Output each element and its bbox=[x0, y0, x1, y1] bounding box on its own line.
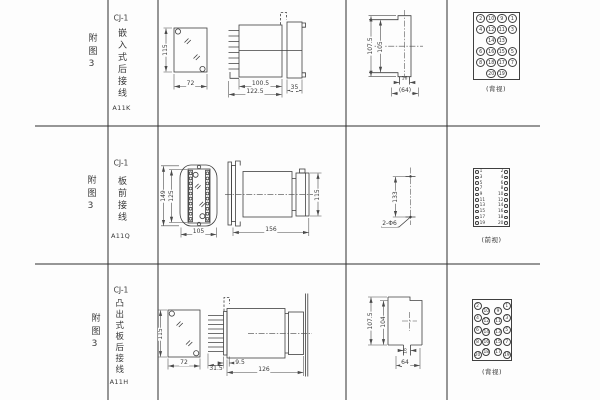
dim-label: 100.5 bbox=[251, 81, 270, 87]
mounting-type-label: 板前接线 bbox=[116, 176, 125, 224]
product-code-label: A11Q bbox=[111, 232, 130, 239]
dim-label: 104 bbox=[381, 315, 387, 328]
dim-label: 126 bbox=[257, 367, 270, 373]
row3-side-view bbox=[208, 294, 308, 377]
pin-number: 2 bbox=[492, 169, 505, 174]
dim-label: 133 bbox=[393, 190, 399, 203]
mounting-type-label: 嵌入式后接线 bbox=[116, 28, 125, 100]
row1-front-view bbox=[174, 28, 207, 72]
row1-side-view bbox=[229, 13, 306, 79]
terminal-pin: 13 bbox=[494, 328, 502, 336]
terminal-pin bbox=[504, 193, 508, 197]
dim-label: (64) bbox=[398, 88, 412, 94]
figure-number-label: 附图3 bbox=[87, 33, 96, 73]
terminal-pin: 17 bbox=[494, 348, 502, 356]
pin-number: 16 bbox=[492, 209, 505, 214]
terminal-pin: 6 bbox=[476, 47, 486, 57]
terminal-pin: 16 bbox=[482, 338, 490, 346]
row3-front-view bbox=[168, 310, 200, 357]
terminal-pin: 10 bbox=[486, 14, 496, 24]
terminal-pin: 6 bbox=[474, 326, 482, 334]
dim-label: 107.5 bbox=[368, 36, 374, 55]
dim-label: 125 bbox=[169, 189, 175, 202]
terminal-pin: 12 bbox=[482, 317, 490, 325]
pin-number: 15 bbox=[479, 209, 492, 214]
dim-label: 107.5 bbox=[368, 311, 374, 330]
pin-number: 9 bbox=[479, 192, 492, 197]
terminal-pin: 4 bbox=[474, 314, 482, 322]
dim-label: 35 bbox=[290, 85, 300, 91]
dim-label: 16 bbox=[405, 347, 410, 354]
pin-number: 17 bbox=[479, 215, 492, 220]
view-caption: (背视) bbox=[486, 86, 506, 93]
terminal-grid-front-a11q: 1234567891011121314151617181920 bbox=[473, 168, 510, 227]
dim-label: 115 bbox=[158, 327, 164, 340]
terminal-pin: 11 bbox=[494, 317, 502, 325]
terminal-pin: 3 bbox=[503, 314, 511, 322]
pin-number: 4 bbox=[492, 175, 505, 180]
pin-number: 19 bbox=[479, 221, 492, 226]
dim-label: 105 bbox=[192, 229, 205, 235]
terminal-pin: 2 bbox=[476, 14, 486, 24]
terminal-pin: 8 bbox=[474, 338, 482, 346]
terminal-grid-rear-a11k: 2109141211314136161558181772019 bbox=[473, 12, 520, 80]
terminal-pin: 14 bbox=[482, 328, 490, 336]
pin-number: 10 bbox=[492, 192, 505, 197]
view-caption: (前视) bbox=[481, 237, 501, 244]
terminal-pin: 10 bbox=[482, 307, 490, 315]
terminal-pin: 20 bbox=[486, 69, 496, 79]
dim-label: 16 bbox=[401, 78, 408, 83]
terminal-pin: 18 bbox=[482, 348, 490, 356]
terminal-pin bbox=[504, 216, 508, 220]
mounting-type-label: 凸出式板后接线 bbox=[114, 299, 123, 376]
terminal-pin bbox=[504, 204, 508, 208]
terminal-pin: 8 bbox=[476, 58, 486, 68]
dim-label: 9.5 bbox=[234, 360, 246, 366]
dim-label: 115 bbox=[163, 43, 169, 56]
terminal-pin: 15 bbox=[494, 338, 502, 346]
terminal-pin bbox=[504, 221, 508, 225]
pin-number: 5 bbox=[479, 181, 492, 186]
product-code-label: A11H bbox=[110, 379, 129, 386]
terminal-pin: 3 bbox=[508, 25, 518, 35]
pin-number: 3 bbox=[479, 175, 492, 180]
terminal-pin: 7 bbox=[503, 338, 511, 346]
dim-label: 122.5 bbox=[245, 89, 264, 95]
terminal-pin: 2 bbox=[474, 302, 482, 310]
terminal-pin: 19 bbox=[497, 69, 507, 79]
pin-number: 18 bbox=[492, 215, 505, 220]
terminal-grid-rear-a11h: 2468201012141618911131517135719 bbox=[472, 299, 512, 361]
terminal-pin: 4 bbox=[476, 25, 486, 35]
pin-number: 6 bbox=[492, 181, 505, 186]
dim-label: 149 bbox=[161, 189, 167, 202]
terminal-pin bbox=[504, 170, 508, 174]
pin-number: 7 bbox=[479, 186, 492, 191]
pin-number: 13 bbox=[479, 203, 492, 208]
terminal-pin bbox=[504, 181, 508, 185]
terminal-pin: 1 bbox=[503, 302, 511, 310]
figure-number-label: 附图3 bbox=[90, 313, 99, 353]
terminal-pin: 11 bbox=[497, 25, 507, 35]
dim-label: 31.5 bbox=[208, 366, 223, 372]
figure-number-label: 附图3 bbox=[86, 175, 95, 215]
terminal-pin: 7 bbox=[508, 58, 518, 68]
dim-label: 64 bbox=[400, 360, 410, 366]
terminal-pin: 16 bbox=[486, 47, 496, 57]
dim-label: 115 bbox=[315, 188, 321, 201]
terminal-pin: 5 bbox=[503, 326, 511, 334]
table-grid bbox=[35, 0, 540, 400]
terminal-pin: 5 bbox=[508, 47, 518, 57]
dim-label: 72 bbox=[179, 360, 189, 366]
terminal-pin bbox=[504, 198, 508, 202]
terminal-pin: 12 bbox=[486, 25, 496, 35]
pin-number: 8 bbox=[492, 186, 505, 191]
terminal-pin: 15 bbox=[497, 47, 507, 57]
terminal-pin: 19 bbox=[503, 351, 511, 359]
terminal-pin bbox=[504, 210, 508, 214]
dim-label: 2-Φ6 bbox=[381, 221, 398, 227]
terminal-pin bbox=[504, 176, 508, 180]
row2-side-view bbox=[228, 161, 309, 226]
view-caption: (背视) bbox=[482, 369, 502, 376]
model-label: CJ-1 bbox=[114, 159, 129, 167]
terminal-pin: 20 bbox=[474, 351, 482, 359]
terminal-pin: 1 bbox=[508, 14, 518, 24]
row2-front-view bbox=[180, 165, 217, 226]
pin-number: 20 bbox=[492, 221, 505, 226]
dim-label: 105 bbox=[378, 40, 384, 53]
terminal-pin: 17 bbox=[497, 58, 507, 68]
dim-label: 72 bbox=[186, 81, 196, 87]
pin-number: 14 bbox=[492, 203, 505, 208]
terminal-pin: 13 bbox=[497, 36, 507, 46]
model-label: CJ-1 bbox=[114, 14, 129, 22]
relay-outline-figure: 附图3 CJ-1 嵌入式后接线 A11K 115 72 100.5 122.5 … bbox=[0, 0, 600, 400]
pin-number: 1 bbox=[479, 169, 492, 174]
terminal-pin: 18 bbox=[486, 58, 496, 68]
terminal-pin: 9 bbox=[497, 14, 507, 24]
terminal-pin bbox=[504, 187, 508, 191]
model-label: CJ-1 bbox=[114, 286, 129, 294]
terminal-pin: 9 bbox=[494, 307, 502, 315]
terminal-pin: 14 bbox=[486, 36, 496, 46]
dim-label: 156 bbox=[264, 227, 277, 233]
product-code-label: A11K bbox=[112, 104, 130, 111]
